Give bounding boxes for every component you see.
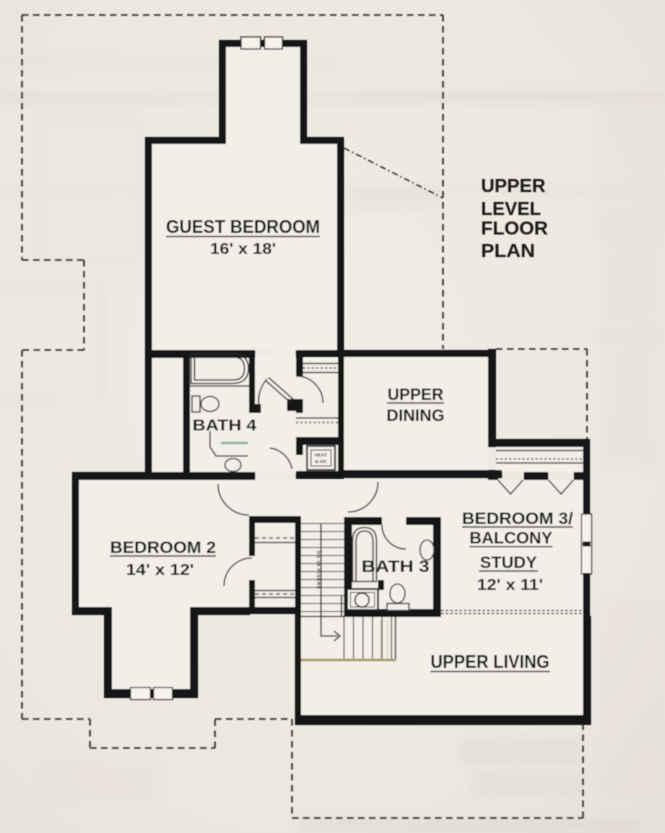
svg-text:BEDROOM 2: BEDROOM 2 [110,538,216,557]
svg-text:HEAT: HEAT [315,453,327,458]
svg-text:LEVEL: LEVEL [481,199,541,219]
svg-text:BALCONY: BALCONY [470,529,554,548]
svg-text:UPPER: UPPER [481,176,546,196]
svg-text:BATH 4: BATH 4 [193,418,257,435]
svg-text:12' x 11': 12' x 11' [477,577,543,594]
svg-text:GUEST BEDROOM: GUEST BEDROOM [166,217,320,237]
svg-text:16' x 18': 16' x 18' [210,241,276,258]
svg-text:STUDY: STUDY [480,553,538,572]
svg-text:DN 16 RISERS: DN 16 RISERS [315,551,321,590]
svg-text:PLAN: PLAN [481,241,535,261]
svg-text:DINING: DINING [387,406,445,425]
svg-text:BEDROOM 3/: BEDROOM 3/ [462,509,573,528]
svg-text:UPPER LIVING: UPPER LIVING [431,652,550,672]
svg-text:BATH 3: BATH 3 [362,557,430,576]
svg-text:FLOOR: FLOOR [481,219,548,239]
svg-text:14' x 12': 14' x 12' [126,562,194,579]
svg-text:& A/C: & A/C [315,459,328,464]
svg-text:UPPER: UPPER [388,385,444,404]
